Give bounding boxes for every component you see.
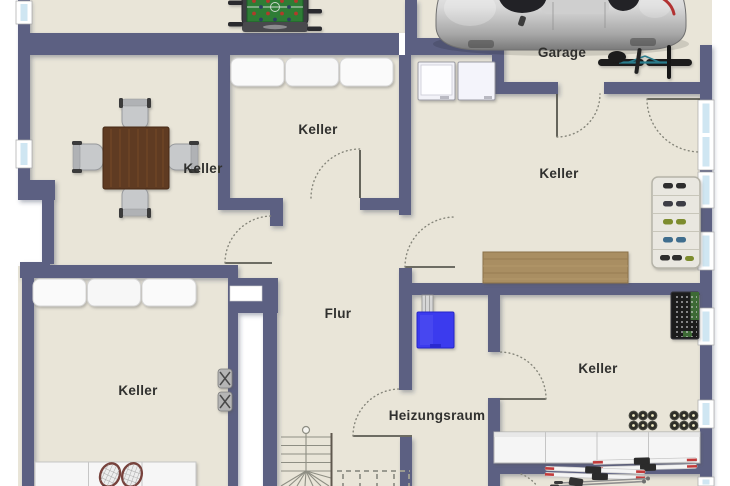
label-keller-top-left: Keller xyxy=(183,161,223,176)
floorplan-svg: Garage Keller Keller Keller Flur Keller … xyxy=(0,0,730,486)
tool-pegboard-icon xyxy=(671,292,699,339)
label-keller-top-middle: Keller xyxy=(298,122,338,137)
label-keller-right: Keller xyxy=(539,166,579,181)
label-garage: Garage xyxy=(538,45,587,60)
label-flur: Flur xyxy=(325,306,352,321)
floorplan-canvas: Garage Keller Keller Keller Flur Keller … xyxy=(0,0,730,486)
shaft-void xyxy=(238,310,263,486)
label-keller-bottom-left: Keller xyxy=(118,383,158,398)
label-heizungsraum: Heizungsraum xyxy=(389,408,486,423)
chair-icon xyxy=(72,141,103,173)
foosball-table-icon xyxy=(228,0,322,32)
shoe-rack-icon xyxy=(652,177,700,268)
window-icon xyxy=(698,308,714,345)
window-icon xyxy=(698,400,714,428)
chair-icon xyxy=(119,98,151,129)
window-icon xyxy=(698,100,714,170)
chair-icon xyxy=(119,187,151,218)
window-icon xyxy=(16,140,32,168)
workbench-icon xyxy=(483,252,628,283)
wall-niche xyxy=(230,286,262,301)
window-icon xyxy=(16,1,32,24)
storage-cushions-top-icon xyxy=(231,58,393,86)
storage-cushions-bottom-icon xyxy=(33,279,196,306)
wall-gap xyxy=(399,33,405,55)
window-icon xyxy=(698,477,714,486)
label-keller-bottom-right: Keller xyxy=(578,361,618,376)
